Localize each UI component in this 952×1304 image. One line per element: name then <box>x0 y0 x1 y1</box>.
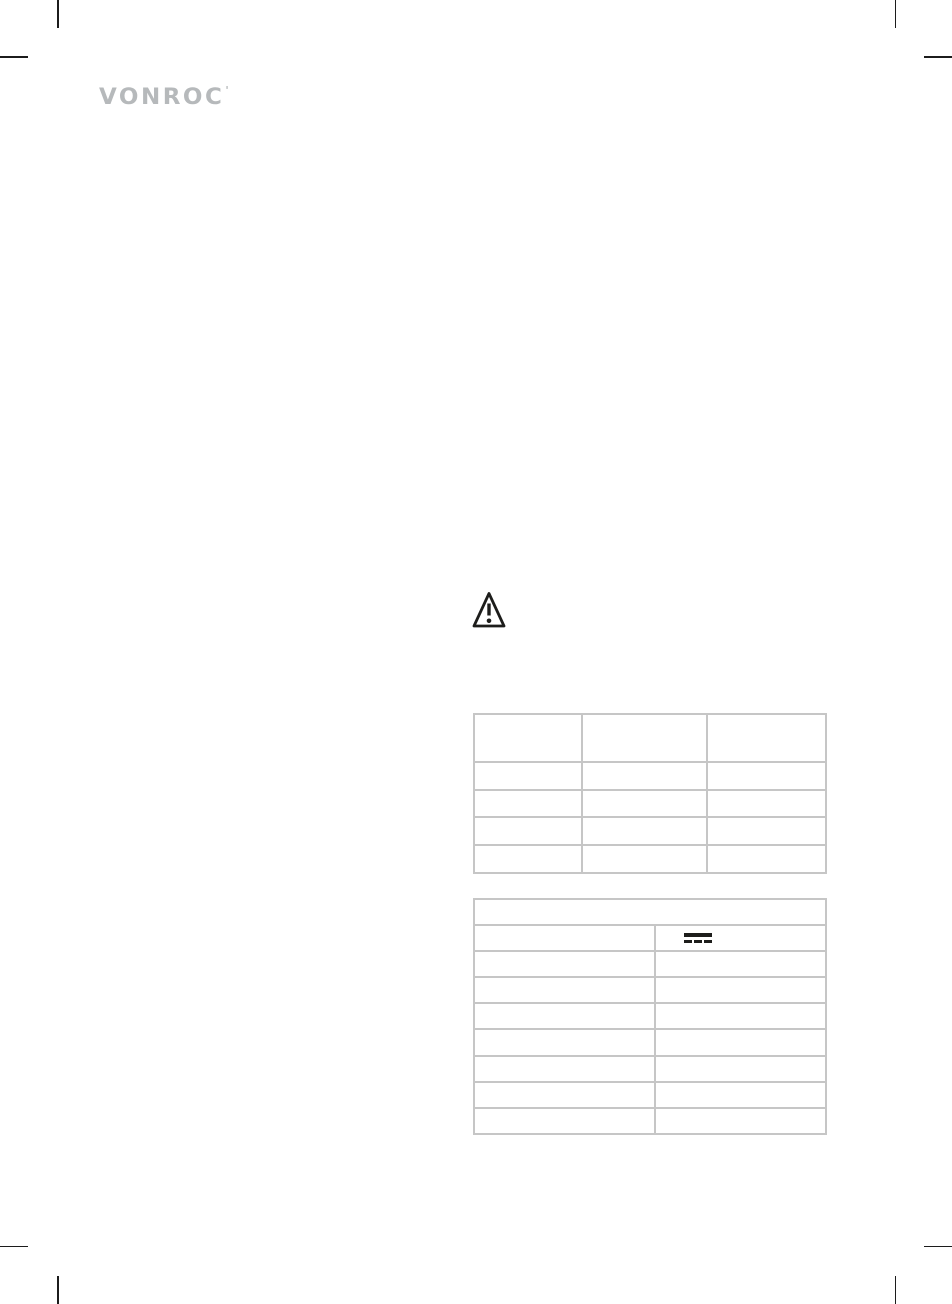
table-cell <box>475 978 654 1002</box>
table-cell <box>656 952 825 976</box>
crop-mark-bottom-right-vertical <box>895 1276 897 1304</box>
table-cell <box>708 846 825 872</box>
manual-page: VONROC' <box>0 0 952 1304</box>
table-cell <box>708 715 825 761</box>
warning-triangle-icon <box>471 589 507 631</box>
table-cell <box>475 1057 654 1081</box>
spec-table <box>473 713 827 874</box>
table-cell <box>708 791 825 817</box>
table-cell <box>656 1057 825 1081</box>
table-cell <box>656 978 825 1002</box>
dc-symbol-solid-bar <box>684 933 712 937</box>
table-cell <box>475 1083 654 1107</box>
table-cell <box>475 1030 654 1054</box>
vonroc-logo-text: VONROC <box>99 84 224 109</box>
table-cell <box>708 763 825 789</box>
crop-mark-bottom-left-horizontal <box>0 1246 28 1248</box>
table-cell <box>475 926 654 950</box>
table-cell <box>475 763 581 789</box>
table-header-cell <box>475 900 825 924</box>
crop-mark-top-right-horizontal <box>924 56 952 58</box>
table-cell <box>656 1030 825 1054</box>
dc-symbol-dashes <box>684 940 712 943</box>
table-cell <box>708 818 825 844</box>
tech-table <box>473 898 827 1135</box>
table-cell <box>475 818 581 844</box>
table-cell <box>475 846 581 872</box>
table-cell <box>583 818 706 844</box>
table-cell <box>475 1109 654 1133</box>
logo-trademark-tick: ' <box>225 84 228 97</box>
vonroc-logo: VONROC' <box>99 79 229 108</box>
crop-mark-top-left-horizontal <box>0 56 28 58</box>
table-cell <box>656 1083 825 1107</box>
dc-symbol-cell <box>656 926 825 950</box>
table-cell <box>475 715 581 761</box>
crop-mark-bottom-left-vertical <box>57 1276 59 1304</box>
crop-mark-top-right-vertical <box>895 0 897 28</box>
table-cell <box>475 1004 654 1028</box>
dc-symbol-icon <box>684 933 712 943</box>
table-cell <box>656 1109 825 1133</box>
table-cell <box>475 791 581 817</box>
table-cell <box>583 763 706 789</box>
table-cell <box>583 715 706 761</box>
table-cell <box>583 791 706 817</box>
table-cell <box>656 1004 825 1028</box>
table-cell <box>475 952 654 976</box>
table-cell <box>583 846 706 872</box>
crop-mark-top-left-vertical <box>57 0 59 28</box>
crop-mark-bottom-right-horizontal <box>924 1246 952 1248</box>
